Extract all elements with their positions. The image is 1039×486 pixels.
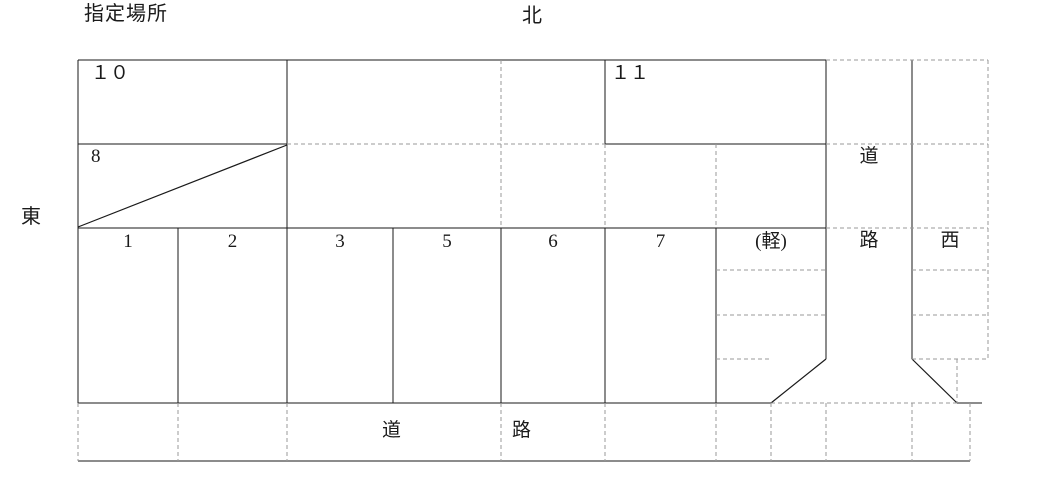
compass-north-label: 北 [522,5,542,27]
right-road-label-ro: 路 [826,230,912,252]
dashed-lines [78,60,988,461]
bottom-road-label-ro: 路 [512,420,531,442]
compass-west-label: 西 [912,230,988,252]
stall-label-1: 1 [78,231,178,253]
stall-label-2: 2 [178,231,287,253]
spot-10-label: １０ [91,63,129,85]
diagonal-lines [78,145,957,403]
stall-label-3: 3 [287,231,393,253]
parking-layout-diagram: 指定場所 北 東 西 １０ 8 １１ 1 2 3 5 6 7 (軽) 道 路 道… [0,0,1039,486]
stall-label-7: 7 [605,231,716,253]
stall-label-kei: (軽) [716,231,826,253]
solid-lines [78,60,982,461]
stall-label-5: 5 [393,231,501,253]
page-title: 指定場所 [84,3,168,25]
stall-label-6: 6 [501,231,605,253]
bottom-road-label-dou: 道 [382,420,401,442]
right-road-label-dou: 道 [826,146,912,168]
compass-east-label: 東 [21,206,41,228]
spot-8-label: 8 [91,146,101,168]
spot-11-label: １１ [611,63,649,85]
